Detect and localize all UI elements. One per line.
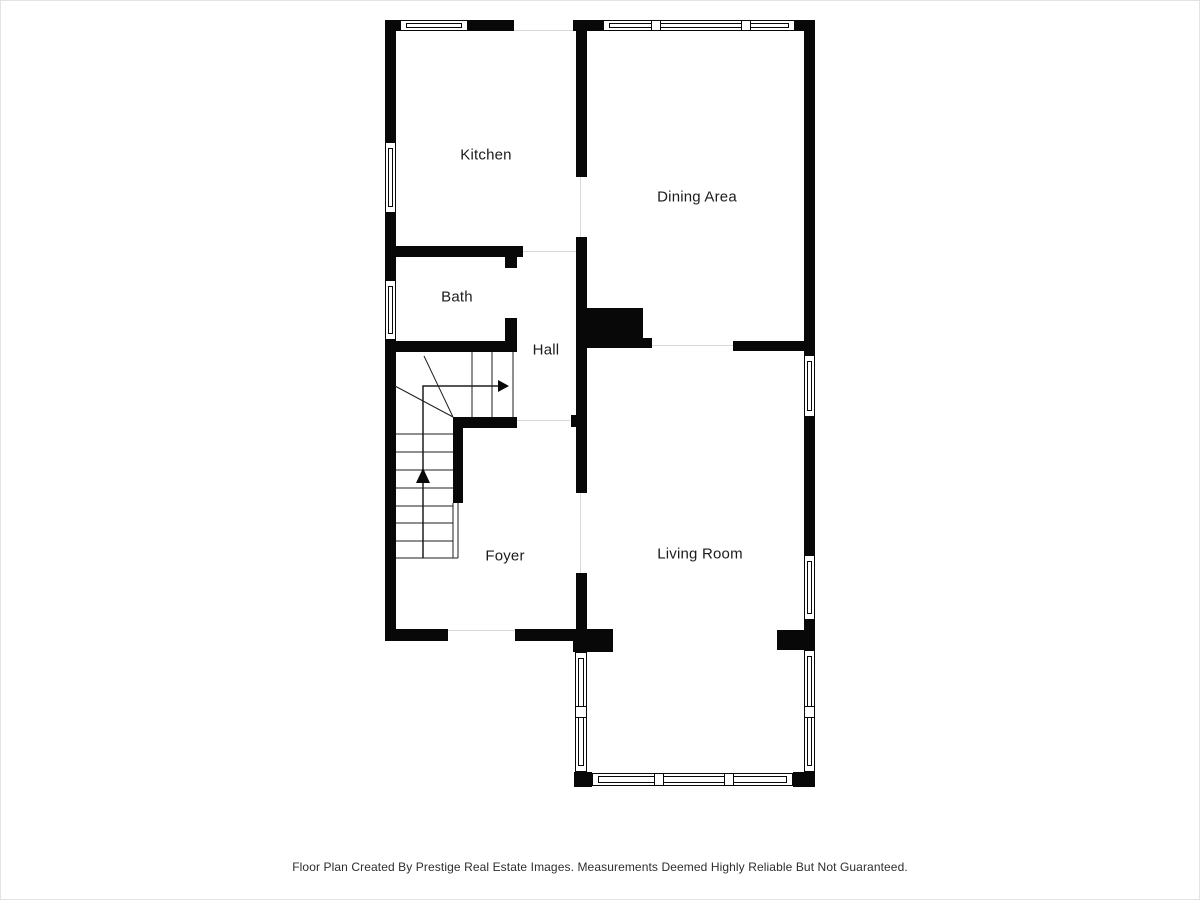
room-label-bath: Bath (441, 289, 473, 306)
living-left-window (575, 652, 587, 772)
bath-left-window (385, 280, 396, 340)
room-label-kitchen: Kitchen (460, 147, 511, 164)
front-door-opening-line (448, 630, 515, 631)
window-glass (609, 23, 789, 28)
wall-kitchen-dining-upper (576, 20, 587, 177)
window-mullion (654, 774, 664, 785)
window-glass (388, 148, 393, 207)
door-jamb-tick (571, 415, 577, 427)
wall-bath-right-upper (505, 257, 517, 268)
opening-line-hall-foyer (517, 420, 570, 421)
window-glass (388, 286, 393, 334)
window-mullion (741, 21, 751, 30)
wall-foyer-living (576, 573, 587, 629)
living-right-window-lower (804, 650, 815, 772)
room-label-hall: Hall (533, 342, 560, 359)
room-label-dining-area: Dining Area (657, 189, 737, 206)
opening-line-foyer-living (580, 493, 581, 573)
window-glass (807, 561, 812, 614)
wall-kitchen-bottom (385, 246, 523, 257)
wall-kitchen-top-a (385, 20, 400, 31)
window-glass (598, 776, 787, 783)
wall-foyer-bottom-b (515, 629, 573, 641)
wall-junction-block (573, 629, 613, 652)
window-glass (406, 23, 462, 28)
window-mullion (651, 21, 661, 30)
wall-dining-top-a (573, 20, 603, 31)
opening-line-top (514, 30, 576, 31)
living-bottom-window (592, 773, 793, 786)
wall-right-stub (777, 630, 815, 650)
window-mullion (724, 774, 734, 785)
kitchen-top-window (400, 20, 468, 31)
dining-top-window (603, 20, 795, 31)
dining-right-window (804, 355, 815, 417)
opening-line-kitchen-dining (580, 177, 581, 237)
window-glass (807, 361, 812, 411)
wall-right-upper (804, 20, 815, 355)
living-right-window-upper (804, 555, 815, 620)
stair-arrow-right-icon (498, 380, 509, 392)
footer-disclaimer: Floor Plan Created By Prestige Real Esta… (0, 860, 1200, 874)
opening-line-hall-top (523, 251, 576, 252)
wall-bottom-corner-right (793, 772, 815, 787)
window-mullion (805, 706, 814, 718)
wall-hall-dining (576, 237, 587, 493)
room-label-foyer: Foyer (485, 548, 524, 565)
floor-plan-page: Kitchen Dining Area Bath Hall Foyer Livi… (0, 0, 1200, 900)
wall-bottom-corner-left (574, 772, 592, 787)
wall-left-upper (385, 20, 396, 142)
floor-plan: Kitchen Dining Area Bath Hall Foyer Livi… (0, 0, 1200, 900)
wall-dining-living-divider (733, 341, 804, 351)
wall-foyer-bottom-a (385, 629, 448, 641)
staircase (385, 340, 520, 565)
wall-kitchen-top-b (468, 20, 514, 31)
room-label-living-room: Living Room (657, 546, 743, 563)
chimney-block-lip (643, 338, 652, 348)
wall-right-mid (804, 417, 815, 555)
chimney-block (583, 308, 643, 348)
opening-line-hall-living (652, 345, 733, 346)
window-mullion (576, 706, 586, 718)
kitchen-left-window (385, 142, 396, 213)
